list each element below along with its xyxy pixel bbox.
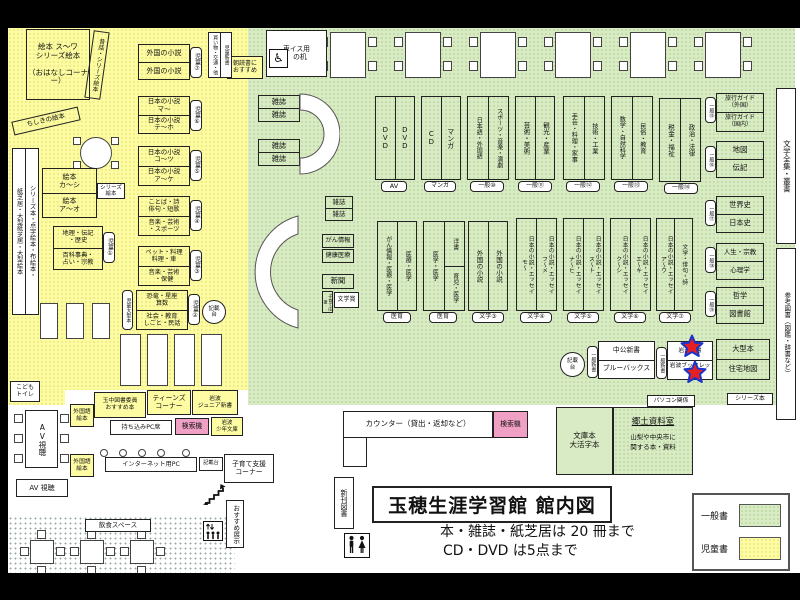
zasshi-c: 雑誌雑誌 [325, 196, 353, 221]
shelf-bungaku-6-col-1: 日本の小説・エッセイ エ〜キ [630, 219, 650, 310]
tag-ippan-16: 一般⑯ [705, 146, 716, 172]
series-hon-strip-col-1: シリーズ本・点字絵本・布絵本・ [25, 149, 38, 314]
dvd-shelf-col-0: DVD [376, 97, 395, 179]
dvd-shelf-col-1: DVD [395, 97, 415, 179]
chizu-denki-shelf-row-0: 地図 [717, 142, 763, 159]
tag-jido-6: 児童⑥ [190, 100, 202, 131]
kisaidai-shinsho: 記載 台 [560, 352, 585, 377]
chuko-shinsho-shelf-row-1: ブルーバックス [599, 360, 654, 379]
chishiki-ehon-label: ちしきの絵本 [11, 107, 80, 136]
jido-shinsho-col-1: 児童新書 [220, 33, 232, 77]
library-floor-map: 絵本 ス〜ワ シリーズ絵本 （おはなしコーナー）昔話・シリーズ絵本ちしきの絵本紙… [0, 0, 800, 600]
pet-shelf-row-1: 音楽・芸術 ・保健 [139, 266, 189, 286]
shelf-ippan-13: 数学・自然科学民俗・教育 [611, 96, 653, 180]
teens-corner: ティーンズ コーナー [147, 390, 191, 415]
jinsei-shelf: 人生・宗教心理学 [716, 243, 764, 280]
tag-iiku-2: 医育 [429, 312, 457, 323]
sekaishi-shelf-row-1: 日本史 [717, 214, 763, 232]
shelf-bungaku-4: 日本の小説・エッセイ モ〜日本の小説・エッセイ フ〜メ [516, 218, 557, 311]
pet-shelf-row-0: ペット・料理 料理・車 [139, 247, 189, 266]
loan-limit-note: 本・雑誌・紙芝居は 20 冊まで [440, 521, 635, 541]
shelf-ippan-13-col-1: 民俗・教育 [632, 97, 653, 179]
kyodo-room-title: 郷土資料室 [614, 415, 692, 427]
chiri-shelf: 地理・伝記 ・歴史百科事典・ 占い・宗教 [53, 226, 103, 270]
kodomo-toilet: こども トイレ [10, 381, 40, 402]
ehon-corner: 絵本 ス〜ワ シリーズ絵本 （おはなしコーナー） [26, 29, 90, 100]
shelf-bungaku-5-col-1: 日本の小説・エッセイ ス〜ト [583, 219, 603, 310]
nihon-shosetsu-ko: 日本の小説 コ〜ツ日本の小説 ア〜ケ [138, 146, 190, 186]
zasshi-c-row-0: 雑誌 [326, 197, 352, 208]
legend: 一般書 児童書 [692, 493, 790, 571]
kotoba-shelf: ことば・詩 俳句・短歌音楽・芸術 ・スポーツ [138, 196, 190, 236]
shinbun: 新聞 [322, 274, 354, 289]
tag-ippan-18: 一般⑱ [705, 247, 716, 273]
inshoku-label: 飲食スペース [85, 519, 151, 532]
kisaidai-jido: 記載 台 [202, 300, 226, 324]
chuko-shinsho-shelf-row-0: 中公新書 [599, 342, 654, 360]
shelf-bungaku-7-col-1: 文学・俳句・詩 [674, 219, 692, 310]
shelf-ippan-11-col-1: 観光・産業 [535, 97, 555, 179]
shelf-ippan-11: 芸術・美術観光・産業 [515, 96, 555, 180]
tag-iiku-1: 医育 [383, 312, 411, 323]
ogata-bon-shelf: 大型本住宅地図 [716, 339, 770, 380]
iwanami-shonen-bunko: 岩波 少年文庫 [211, 417, 243, 436]
zasshi-b-row-1: 雑誌 [259, 152, 299, 165]
tag-jido-1: 児童① [103, 232, 115, 263]
ehon-ka-shi-row-1: 絵本 ア〜オ [43, 193, 96, 218]
ryokou-guide-shelf: 旅行ガイド （外国）旅行ガイド （国内） [716, 93, 764, 132]
cd-dvd-limit-note: CD・DVD は5点まで [443, 540, 578, 560]
kyodo-shiryo-room: 郷土資料室 山梨や中央市に 関する本・資料 [613, 407, 693, 475]
cd-manga-shelf-col-1: マンガ [441, 97, 461, 179]
legend-general-swatch [739, 504, 781, 527]
shelf-ippan-12-col-1: 技術・工業 [584, 97, 605, 179]
sekaishi-shelf: 世界史日本史 [716, 196, 764, 233]
shelf-bungaku-6-col-0: 日本の小説・エッセイ ク〜シ [611, 219, 630, 310]
internet-pc: インターネット用PC [105, 457, 197, 472]
star-icon [680, 334, 704, 358]
series-hon-strip-col-0: 紙芝居・大型紙芝居・大型絵本 [13, 149, 25, 314]
kensakuki-counter: 検索機 [493, 411, 528, 438]
ehon-ka-shi-row-0: 絵本 カ〜シ [43, 169, 96, 193]
med-shelf-1-col-1: 医療・医学 [397, 222, 417, 310]
chiri-shelf-row-1: 百科事典・ 占い・宗教 [54, 248, 102, 270]
osusume-tenji: おすすめ展示 [226, 500, 244, 548]
kyoryu-shelf: 恐竜・星座 算数社会・教育 しごと・民話 [136, 290, 188, 330]
sekaishi-shelf-row-0: 世界史 [717, 197, 763, 214]
shelf-bungaku-7-col-0: 日本の小説・エッセイ ア〜ウ [657, 219, 674, 310]
gaikoku-shosetsu-jido-row-1: 外国の小説 [139, 62, 189, 80]
bunko-daikatsuji: 文庫本 大活字本 [556, 407, 613, 475]
av-shicho-2: AV 視聴 [16, 479, 68, 497]
zasshi-a-row-0: 雑誌 [259, 96, 299, 108]
tag-ippan-13: 一般⑬ [614, 181, 648, 192]
kyoryu-shelf-row-1: 社会・教育 しごと・民話 [137, 310, 187, 330]
tag-ippan-shinsho-1: 一般新書 [587, 346, 598, 378]
tag-ippan-14: 一般⑭ [664, 183, 698, 194]
series-ehon-tag: シリーズ 絵本 [97, 183, 125, 199]
tag-av: AV [381, 181, 407, 192]
tag-ippan-15: 一般⑮ [705, 97, 716, 123]
med-shelf-2: 医学・医学洋書育児・医学 [423, 221, 465, 311]
asadoku-osusume: 朝読書に おすすめ [227, 56, 263, 79]
crescent-sofa-icon [254, 213, 302, 331]
shelf-bungaku-3: 外国の小説外国の小説 [468, 221, 508, 311]
gan-joho: がん情報 [322, 234, 354, 248]
jinsei-shelf-row-1: 心理学 [717, 261, 763, 279]
mochikomi-pc-seki: 持ち込みPC席 [110, 420, 172, 435]
ehon-ka-shi: 絵本 カ〜シ絵本 ア〜オ [42, 168, 97, 218]
med-shelf-2-col-0: 医学・医学 [424, 222, 444, 310]
star-icon [683, 360, 707, 384]
tag-ippan-17: 一般⑰ [705, 200, 716, 226]
legend-children-row: 児童書 [701, 537, 781, 560]
shelf-bungaku-4-col-1: 日本の小説・エッセイ フ〜メ [536, 219, 556, 310]
tag-series-bon: シリーズ本 [727, 393, 773, 405]
tamaho-osusume: 玉中図書委員 おすすめ本 [94, 392, 146, 418]
iwanami-junior-shinsho: 岩波 ジュニア新書 [192, 390, 238, 415]
jinsei-shelf-row-0: 人生・宗教 [717, 244, 763, 261]
chuko-shinsho-shelf: 中公新書ブルーバックス [598, 341, 655, 379]
pet-shelf: ペット・料理 料理・車音楽・芸術 ・保健 [138, 246, 190, 286]
kensakuki-teens: 検索機 [175, 418, 209, 435]
jido-shinsho-col-0: 買い物・交通・他 [209, 33, 220, 77]
legend-general-label: 一般書 [701, 509, 728, 522]
chizu-denki-shelf: 地図伝記 [716, 141, 764, 178]
tag-ippan-12: 一般⑫ [566, 181, 600, 192]
nihon-shosetsu-ma-row-1: 日本の小説 テ〜ホ [139, 115, 189, 134]
map-title: 玉穂生涯学習館 館内図 [372, 486, 612, 523]
letterbox-left [0, 28, 8, 146]
letterbox-bottom [0, 573, 800, 600]
shelf-bungaku-7: 日本の小説・エッセイ ア〜ウ文学・俳句・詩 [656, 218, 693, 311]
tag-ippan-11: 一般⑪ [518, 181, 552, 192]
kyoryu-shelf-row-0: 恐竜・星座 算数 [137, 291, 187, 310]
wheelchair-icon: ♿ [269, 49, 288, 68]
shelf-bungaku-6: 日本の小説・エッセイ ク〜シ日本の小説・エッセイ エ〜キ [610, 218, 651, 311]
kosodate-shien-corner: 子育て支援 コーナー [224, 454, 274, 483]
ogata-bon-shelf-row-0: 大型本 [717, 340, 769, 359]
av-shicho-table: AV視聴 [25, 410, 58, 468]
elevator-icon [203, 521, 223, 541]
tag-jido-5: 児童⑤ [190, 150, 202, 181]
tag-manga: マンガ [424, 181, 456, 192]
kosodate-ouen: 子育て応援 [322, 291, 333, 313]
shelf-ippan-12-col-0: 手芸・料理・家事 [564, 97, 584, 179]
tetsugaku-shelf: 哲学図書館 [716, 287, 764, 324]
kotoba-shelf-row-1: 音楽・芸術 ・スポーツ [139, 216, 189, 236]
shelf-ippan-10-col-1: スポーツ・音楽・演劇 [488, 97, 509, 179]
med-shelf-2-col-1: 洋書育児・医学 [444, 222, 465, 310]
legend-children-label: 児童書 [701, 542, 728, 555]
gaikoku-shosetsu-jido: 外国の小説外国の小説 [138, 44, 190, 80]
jido-shinsho: 買い物・交通・他児童新書 [208, 32, 232, 78]
tag-bungaku-3: 文学③ [472, 312, 504, 323]
zasshi-a-row-1: 雑誌 [259, 108, 299, 121]
tag-jido-2: 児童② [188, 294, 200, 325]
med-shelf-1-col-0: がん情報・医療・医学 [378, 222, 397, 310]
nihon-shosetsu-ma: 日本の小説 マ〜日本の小説 テ〜ホ [138, 96, 190, 134]
gaikokugo-ehon-2: 外国語 絵本 [70, 454, 94, 477]
zasshi-b-row-0: 雑誌 [259, 140, 299, 152]
stairs-icon [201, 483, 229, 505]
shelf-ippan-11-col-0: 芸術・美術 [516, 97, 535, 179]
shelf-ippan-14-col-1: 政治・法律 [680, 99, 701, 181]
shelf-bungaku-5: 日本の小説・エッセイ ナ〜ヒ日本の小説・エッセイ ス〜ト [563, 218, 604, 311]
letterbox-top [0, 0, 800, 28]
restroom-icon [344, 533, 370, 558]
tetsugaku-shelf-row-1: 図書館 [717, 305, 763, 323]
chizu-denki-shelf-row-1: 伝記 [717, 159, 763, 177]
dvd-shelf: DVDDVD [375, 96, 415, 180]
nihon-shosetsu-ma-row-0: 日本の小説 マ〜 [139, 97, 189, 115]
nihon-shosetsu-ko-row-0: 日本の小説 コ〜ツ [139, 147, 189, 166]
tag-jido-7: 児童⑦ [190, 47, 202, 78]
shelf-ippan-14: 税金・福祉政治・法律 [659, 98, 701, 182]
gaikokugo-ehon-1: 外国語 絵本 [70, 404, 94, 427]
nihon-shosetsu-ko-row-1: 日本の小説 ア〜ケ [139, 166, 189, 186]
shelf-ippan-10-col-0: 日本語・外国語 [468, 97, 488, 179]
legend-general-row: 一般書 [701, 504, 781, 527]
kyodo-room-description: 山梨や中央市に 関する本・資料 [614, 433, 692, 453]
shelf-ippan-14-col-0: 税金・福祉 [660, 99, 680, 181]
shelf-bungaku-3-col-1: 外国の小説 [488, 222, 508, 310]
tag-bungaku-6: 文学⑥ [614, 312, 646, 323]
series-hon-strip: 紙芝居・大型紙芝居・大型絵本シリーズ本・点字絵本・布絵本・ [12, 148, 39, 315]
tag-jido-ogata: 児童大型本 [122, 290, 133, 330]
ogata-bon-shelf-row-1: 住宅地図 [717, 359, 769, 379]
shelf-ippan-13-col-0: 数学・自然科学 [612, 97, 632, 179]
tag-jido-3: 児童③ [190, 250, 202, 281]
counter-leg [343, 437, 367, 467]
tag-jido-4: 児童④ [190, 200, 202, 231]
legend-children-swatch [739, 537, 781, 560]
med-shelf-1: がん情報・医療・医学医療・医学 [377, 221, 417, 311]
counter: カウンター（貸出・返却など） [343, 411, 493, 438]
tag-ippan-10: 一般⑩ [470, 181, 504, 192]
shelf-bungaku-5-col-0: 日本の小説・エッセイ ナ〜ヒ [564, 219, 583, 310]
chiri-shelf-row-0: 地理・伝記 ・歴史 [54, 227, 102, 248]
tetsugaku-shelf-row-0: 哲学 [717, 288, 763, 305]
kenko-iryo: 健康医療 [322, 249, 354, 263]
cd-manga-shelf-col-0: CD [422, 97, 441, 179]
shelf-bungaku-4-col-0: 日本の小説・エッセイ モ〜 [517, 219, 536, 310]
tag-ippan-shinsho-2: 一般新書 [656, 347, 667, 379]
tag-pasokon: パソコン関係 [647, 395, 695, 407]
zasshi-a: 雑誌雑誌 [258, 95, 300, 122]
tag-bungaku-5: 文学⑤ [567, 312, 599, 323]
zasshi-c-row-1: 雑誌 [326, 208, 352, 220]
shinkan-tosho: 新刊図書 [334, 477, 354, 529]
cd-manga-shelf: CDマンガ [421, 96, 461, 180]
tag-ippan-19: 一般⑲ [705, 291, 716, 317]
zasshi-b: 雑誌雑誌 [258, 139, 300, 166]
ryokou-guide-shelf-row-0: 旅行ガイド （外国） [717, 94, 763, 112]
bungaku-zenshu-strip: 文学全集・叢書 [776, 88, 796, 244]
kotoba-shelf-row-0: ことば・詩 俳句・短歌 [139, 197, 189, 216]
gaikoku-shosetsu-jido-row-0: 外国の小説 [139, 45, 189, 62]
ryokou-guide-shelf-row-1: 旅行ガイド （国内） [717, 112, 763, 131]
tag-bungaku-7: 文学⑦ [659, 312, 691, 323]
tag-bungaku-4: 文学④ [520, 312, 552, 323]
shelf-ippan-10: 日本語・外国語スポーツ・音楽・演劇 [467, 96, 509, 180]
sanko-tosho-strip: 参考図書（図鑑・辞書など） [776, 248, 796, 420]
shelf-bungaku-3-col-0: 外国の小説 [469, 222, 488, 310]
bungaku-sho: 文学賞 [334, 292, 359, 308]
shelf-ippan-12: 手芸・料理・家事技術・工業 [563, 96, 605, 180]
crescent-sofa-icon [296, 92, 340, 176]
kisaidai-pc: 記載台 [199, 457, 223, 471]
